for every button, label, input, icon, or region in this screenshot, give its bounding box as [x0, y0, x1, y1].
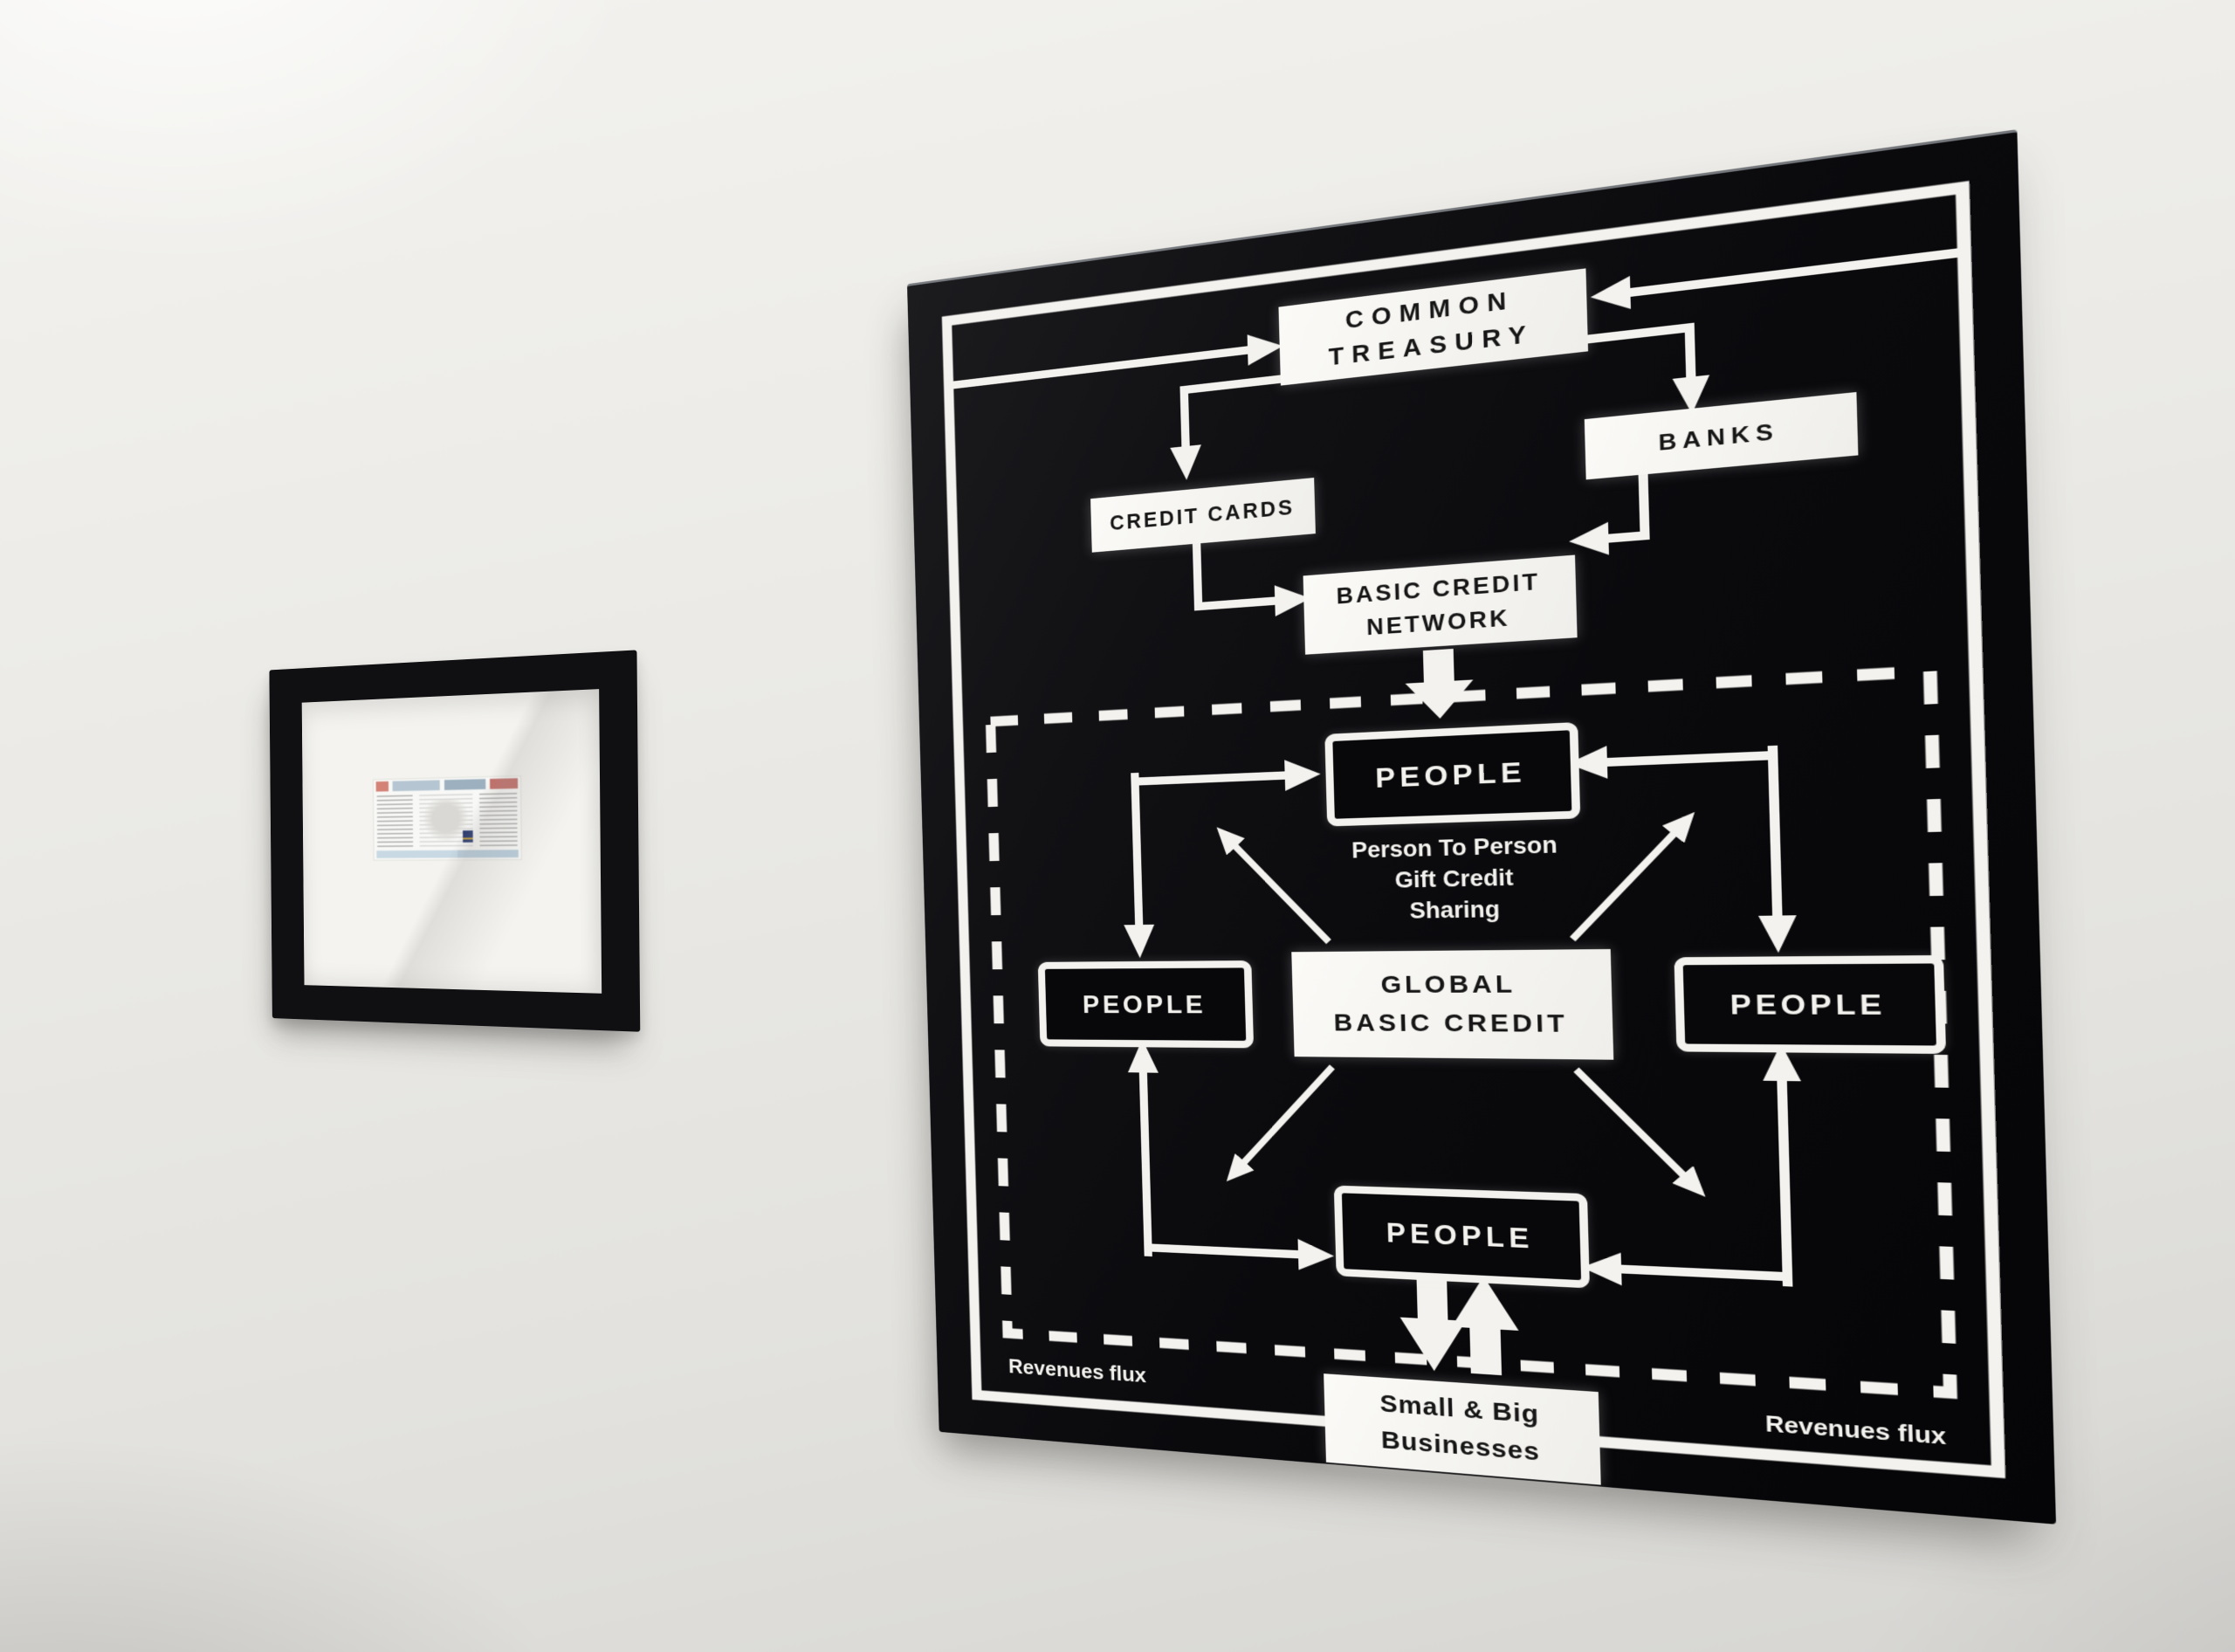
arrow-left-loop-to-common-treasury — [954, 349, 1252, 385]
clipping-logo — [463, 830, 473, 843]
clipping-text-column — [377, 795, 413, 849]
arrow-gift-credit-downright — [1576, 1070, 1686, 1178]
arrow-elbow-to-people-bottom-left — [1148, 1248, 1303, 1255]
arrow-right-loop-to-common-treasury — [1625, 252, 1960, 293]
node-people-right: PEOPLE — [1674, 955, 1946, 1054]
arrow-common-treasury-to-credit-cards — [1184, 379, 1281, 451]
arrow-elbow-to-people-top-right — [1601, 755, 1772, 762]
node-people-left: PEOPLE — [1038, 960, 1254, 1048]
arrow-credit-cards-to-basic-credit-network — [1197, 539, 1280, 607]
arrow-elbow-to-people-right — [1772, 750, 1777, 921]
arrow-elbow-to-people-bottom-right — [1616, 1269, 1788, 1277]
clipping-headline-strip — [376, 779, 519, 792]
mat-board — [302, 689, 602, 994]
framed-clipping-artwork — [269, 650, 640, 1031]
gallery-wall-photo: { "small_frame": { "content": "newspaper… — [0, 0, 2235, 1652]
arrow-elbow-to-people-left — [1135, 777, 1139, 930]
diagram-panel-artwork: COMMON TREASURY BANKS CREDIT CARDS BASIC… — [907, 129, 2056, 1525]
clipping-text-column — [479, 793, 518, 848]
node-people-bottom: PEOPLE — [1334, 1186, 1590, 1289]
node-small-big-businesses: Small & Big Businesses — [1324, 1373, 1601, 1484]
arrow-elbow-up-to-people-left — [1143, 1068, 1148, 1252]
clipping-footer-strip — [376, 850, 519, 858]
node-global-basic-credit: GLOBAL BASIC CREDIT — [1291, 949, 1613, 1060]
block-arrow-network-to-people — [1405, 648, 1475, 720]
note-person-to-person: Person To Person Gift Credit Sharing — [1295, 828, 1621, 928]
arrow-elbow-up-to-people-right — [1782, 1076, 1788, 1282]
arrow-common-treasury-to-banks — [1590, 327, 1691, 392]
arrow-elbow-to-people-top-left — [1135, 775, 1289, 781]
node-people-top: PEOPLE — [1324, 722, 1580, 827]
newspaper-clipping — [373, 775, 522, 861]
arrow-gift-credit-downleft — [1239, 1066, 1335, 1167]
arrow-banks-to-basic-credit-network — [1601, 476, 1645, 539]
